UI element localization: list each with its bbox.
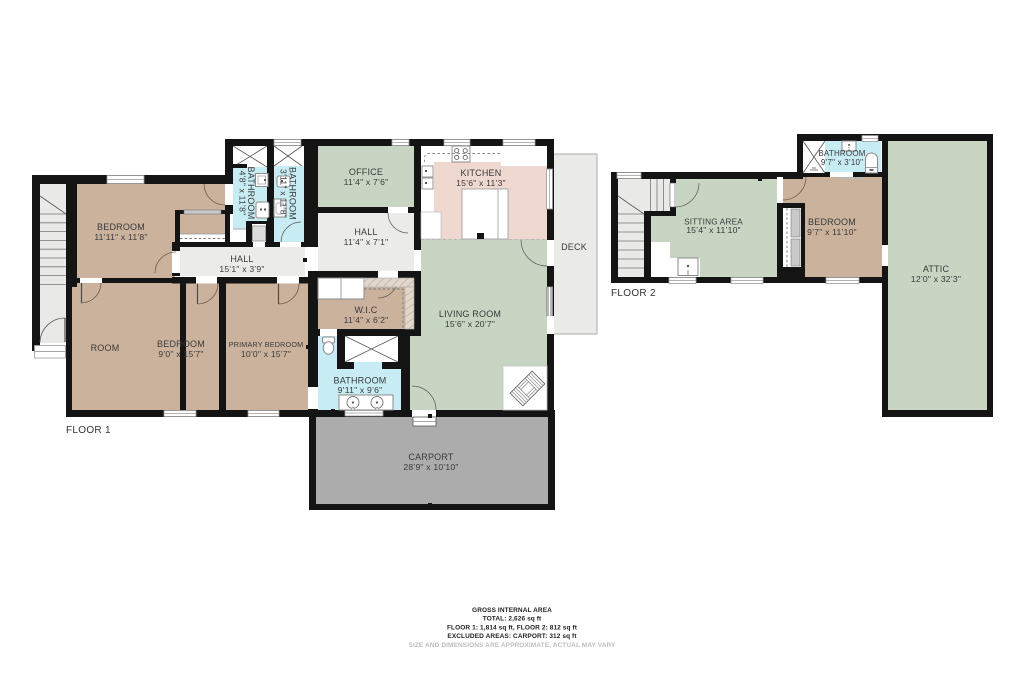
svg-text:9’7" x 11’10": 9’7" x 11’10" bbox=[807, 227, 857, 237]
svg-text:EXCLUDED AREAS: CARPORT: 312 s: EXCLUDED AREAS: CARPORT: 312 sq ft bbox=[447, 633, 577, 640]
svg-text:PRIMARY BEDROOM: PRIMARY BEDROOM bbox=[229, 340, 304, 349]
svg-text:HALL: HALL bbox=[230, 254, 253, 264]
svg-text:SIZE AND DIMENSIONS ARE APPROX: SIZE AND DIMENSIONS ARE APPROXIMATE, ACT… bbox=[409, 642, 617, 649]
svg-text:LIVING ROOM: LIVING ROOM bbox=[439, 309, 501, 319]
svg-text:CARPORT: CARPORT bbox=[408, 452, 454, 462]
svg-text:W.I.C: W.I.C bbox=[355, 305, 378, 315]
svg-text:4’8" x 11’8": 4’8" x 11’8" bbox=[238, 171, 248, 216]
svg-text:12’0" x 32’3": 12’0" x 32’3" bbox=[911, 274, 961, 284]
svg-text:BEDROOM: BEDROOM bbox=[157, 339, 205, 349]
svg-text:9’0" x 15’7": 9’0" x 15’7" bbox=[158, 349, 203, 359]
svg-text:15’4" x 11’10": 15’4" x 11’10" bbox=[686, 225, 741, 235]
svg-text:15’1" x 3’9": 15’1" x 3’9" bbox=[219, 264, 264, 274]
svg-text:3’11" x 11’8": 3’11" x 11’8" bbox=[279, 169, 289, 218]
svg-text:BEDROOM: BEDROOM bbox=[97, 222, 145, 232]
svg-text:11’11" x 11’8": 11’11" x 11’8" bbox=[94, 232, 147, 242]
svg-text:HALL: HALL bbox=[354, 227, 377, 237]
svg-text:BATHROOM: BATHROOM bbox=[818, 149, 865, 158]
svg-text:FLOOR 1: FLOOR 1 bbox=[66, 425, 111, 436]
svg-text:11’4" x 6’2": 11’4" x 6’2" bbox=[344, 315, 389, 325]
svg-text:28’9" x 10’10": 28’9" x 10’10" bbox=[403, 462, 458, 472]
svg-text:OFFICE: OFFICE bbox=[349, 167, 383, 177]
svg-text:11’4" x 7’1": 11’4" x 7’1" bbox=[344, 237, 389, 247]
svg-text:KITCHEN: KITCHEN bbox=[461, 168, 502, 178]
svg-text:10’0" x 15’7": 10’0" x 15’7" bbox=[241, 349, 291, 359]
svg-text:9’7" x 3’10": 9’7" x 3’10" bbox=[821, 158, 863, 167]
svg-text:15’6" x 20’7": 15’6" x 20’7" bbox=[445, 319, 495, 329]
svg-text:9’11" x 9’6": 9’11" x 9’6" bbox=[338, 385, 383, 395]
svg-text:15’6" x 11’3": 15’6" x 11’3" bbox=[456, 178, 506, 188]
svg-text:ATTIC: ATTIC bbox=[923, 264, 950, 274]
svg-text:FLOOR 1: 1,814 sq ft, FLOOR 2:: FLOOR 1: 1,814 sq ft, FLOOR 2: 812 sq ft bbox=[447, 624, 578, 631]
svg-text:ROOM: ROOM bbox=[91, 343, 120, 353]
svg-text:BATHROOM: BATHROOM bbox=[334, 376, 387, 386]
svg-text:FLOOR 2: FLOOR 2 bbox=[611, 288, 656, 299]
svg-text:GROSS INTERNAL AREA: GROSS INTERNAL AREA bbox=[472, 607, 552, 614]
svg-text:TOTAL: 2,626 sq ft: TOTAL: 2,626 sq ft bbox=[483, 616, 542, 623]
svg-text:11’4" x 7’6": 11’4" x 7’6" bbox=[344, 177, 389, 187]
svg-text:DECK: DECK bbox=[561, 242, 587, 252]
svg-text:BEDROOM: BEDROOM bbox=[808, 217, 856, 227]
